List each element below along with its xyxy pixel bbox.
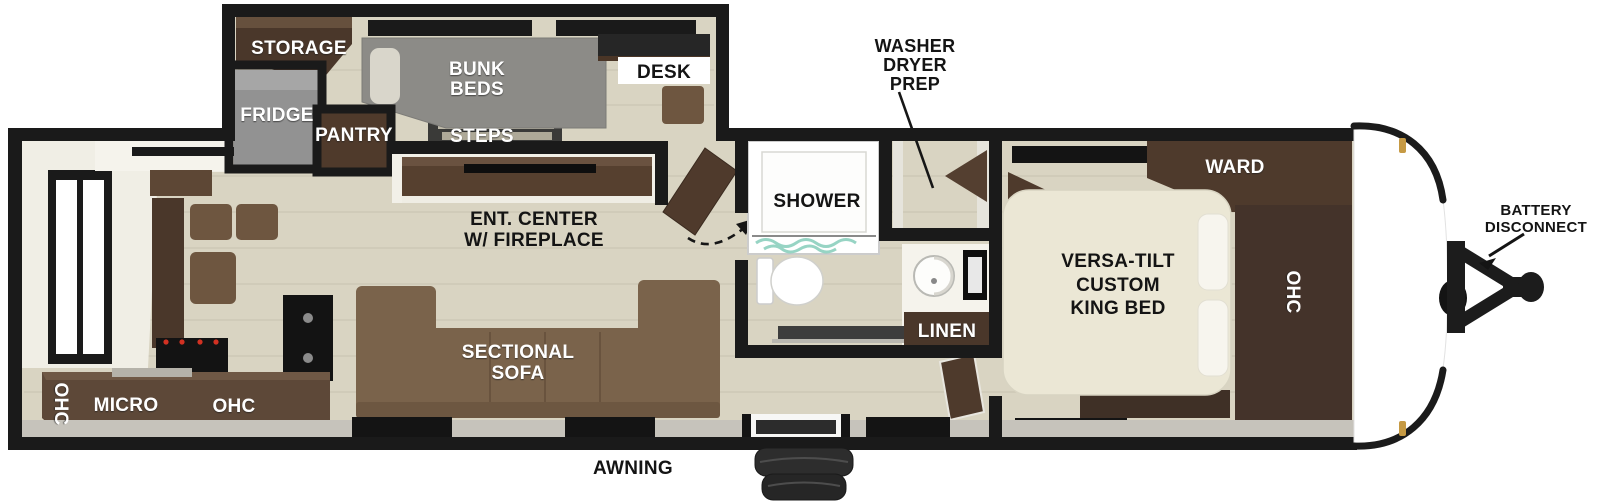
tv xyxy=(464,164,596,173)
desk-surface xyxy=(598,34,710,56)
window-pane xyxy=(56,180,77,354)
king-bed-label-line1: VERSA-TILT xyxy=(1061,251,1175,272)
bottom-window xyxy=(866,417,950,437)
awning-roll xyxy=(22,420,1356,437)
bedroom-window-top xyxy=(1012,146,1147,163)
entry-door-jamb xyxy=(742,414,751,438)
ohc-cabinet xyxy=(1235,205,1352,437)
slideout-wall-right xyxy=(716,4,729,141)
mirror-glass xyxy=(968,257,982,293)
fridge-label: FRIDGE xyxy=(240,105,314,126)
bedroom-ohc-label: OHC xyxy=(1282,270,1303,313)
appliance-knob xyxy=(303,353,313,363)
window-pane xyxy=(83,180,104,354)
sectional-sofa-label-line1: SECTIONAL xyxy=(462,342,575,363)
bath-bottom-wall xyxy=(735,345,1002,358)
washer-dryer-prep-label-line2: DRYER xyxy=(883,55,947,75)
linen-label: LINEN xyxy=(918,321,977,342)
entry-door-jamb xyxy=(841,414,850,438)
bottom-window xyxy=(565,417,655,437)
sink-inset xyxy=(112,368,192,377)
battery-arrow-line xyxy=(1489,234,1524,256)
toilet-bowl xyxy=(771,257,823,305)
desk-chair xyxy=(662,86,704,124)
fridge-top xyxy=(234,70,318,90)
hitch xyxy=(1439,234,1544,333)
appliance-knob xyxy=(303,313,313,323)
washer-dryer-prep-label-line1: WASHER xyxy=(875,36,956,56)
clearance-light xyxy=(1399,138,1406,153)
shower-label: SHOWER xyxy=(773,191,860,212)
ent-center-side-wall xyxy=(655,141,668,205)
awning-label: AWNING xyxy=(593,458,673,479)
step-upper xyxy=(755,448,853,476)
pantry-label: PANTRY xyxy=(315,125,393,146)
clearance-light xyxy=(1399,421,1406,436)
king-bed-label-line3: KING BED xyxy=(1070,298,1165,319)
slideout-wall-top xyxy=(222,4,729,17)
bedroom-wall-upper xyxy=(989,128,1002,358)
front-cap xyxy=(1354,126,1448,446)
ward-label: WARD xyxy=(1205,157,1264,178)
bunk-beds-label-line2: BEDS xyxy=(450,79,504,100)
battery-disconnect-label-line1: BATTERY xyxy=(1500,202,1571,219)
desk-label: DESK xyxy=(637,62,691,83)
bath-wall-left-lower xyxy=(735,260,748,358)
washer-dryer-prep-label-line3: PREP xyxy=(890,74,940,94)
sectional-sofa-label-line2: SOFA xyxy=(492,363,545,384)
ent-center-back-wall xyxy=(392,141,668,154)
battery-disconnect-label-line2: DISCONNECT xyxy=(1485,219,1587,236)
storage-cabinet-face xyxy=(236,17,352,28)
sofa-left-arm xyxy=(356,286,436,418)
bath-bench xyxy=(778,326,914,339)
dinette-chair xyxy=(190,252,236,304)
steps-label: STEPS xyxy=(450,126,514,147)
top-wall-left xyxy=(8,128,222,141)
bath-bench-base xyxy=(772,339,920,343)
dinette-shelf xyxy=(150,170,212,196)
bedroom-wall-lower xyxy=(989,396,1002,437)
kitchen-ohc-label: OHC xyxy=(212,396,255,417)
burner xyxy=(179,339,184,344)
appliance-cabinet xyxy=(283,295,333,381)
bunk-beds-label-line1: BUNK xyxy=(449,59,505,80)
dinette-chair xyxy=(190,204,232,240)
slideout-window xyxy=(556,20,696,36)
bath-wall-left-upper xyxy=(735,141,748,213)
hitch-cross-plate xyxy=(1447,241,1465,333)
burner xyxy=(197,339,202,344)
sofa-back-band xyxy=(356,402,720,418)
washer-closet-wall-lining xyxy=(893,141,903,228)
slideout-window xyxy=(368,20,532,36)
ent-center-label-line2: W/ FIREPLACE xyxy=(464,230,604,251)
burner xyxy=(213,339,218,344)
shower-washer-divider xyxy=(879,141,892,235)
storage-label: STORAGE xyxy=(251,38,347,59)
bed-pillow xyxy=(1198,214,1228,290)
bottom-wall xyxy=(8,437,1357,450)
washer-closet-bottom-wall xyxy=(879,228,1002,241)
ent-center-face xyxy=(402,196,652,203)
bunk-pillow xyxy=(370,48,400,104)
bed-pillow xyxy=(1198,300,1228,376)
dinette-counter xyxy=(152,198,184,348)
burner xyxy=(163,339,168,344)
step-lower xyxy=(762,474,846,500)
dinette-chair xyxy=(236,204,278,240)
micro-label: MICRO xyxy=(94,395,159,416)
rv-floorplan: STORAGE FRIDGE PANTRY BUNK BEDS STEPS DE… xyxy=(0,0,1600,504)
sink xyxy=(914,256,954,296)
entry-threshold xyxy=(756,420,836,434)
top-wall-right xyxy=(729,128,1357,141)
king-bed-label-line2: CUSTOM xyxy=(1076,275,1160,296)
slideout-wall-left xyxy=(222,4,235,141)
rear-ohc-label: OHC xyxy=(50,382,71,425)
entry-steps xyxy=(755,448,853,500)
coupler-knob xyxy=(1518,272,1544,302)
floorplan-canvas: STORAGE FRIDGE PANTRY BUNK BEDS STEPS DE… xyxy=(0,0,1600,504)
sofa-right-arm xyxy=(638,280,720,418)
rear-wall xyxy=(8,128,22,450)
bottom-window xyxy=(352,417,452,437)
ent-center-label-line1: ENT. CENTER xyxy=(470,209,598,230)
sink-drain xyxy=(931,278,937,284)
